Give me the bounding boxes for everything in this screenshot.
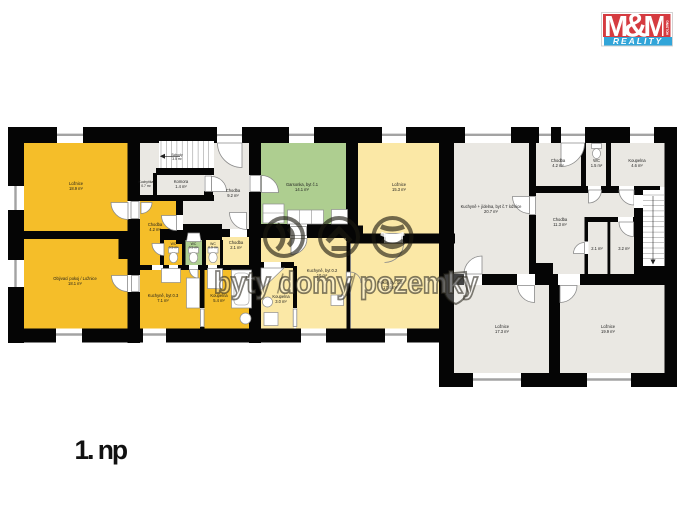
svg-text:3.2 m²: 3.2 m² [618, 246, 630, 251]
svg-text:14.1 m²: 14.1 m² [295, 187, 310, 192]
svg-text:1.5 m²: 1.5 m² [591, 163, 603, 168]
svg-text:HOLDING: HOLDING [666, 20, 670, 35]
svg-text:9.2 m²: 9.2 m² [227, 193, 239, 198]
svg-text:byty domy pozemky: byty domy pozemky [214, 265, 479, 300]
svg-text:18.1 m²: 18.1 m² [68, 281, 83, 286]
svg-text:11.3 m²: 11.3 m² [553, 222, 567, 227]
svg-text:20.7 m²: 20.7 m² [484, 209, 499, 214]
svg-text:0.9 m²: 0.9 m² [189, 246, 199, 250]
svg-text:4.2 m²: 4.2 m² [149, 227, 161, 232]
svg-text:18.9 m²: 18.9 m² [69, 186, 84, 191]
svg-text:19.9 m²: 19.9 m² [601, 329, 616, 334]
svg-text:15.3 m²: 15.3 m² [392, 187, 407, 192]
svg-text:2.1 m²: 2.1 m² [591, 246, 603, 251]
svg-text:REALITY: REALITY [613, 36, 663, 46]
svg-text:0.7 m²: 0.7 m² [141, 184, 151, 188]
svg-text:1.4 m²: 1.4 m² [175, 184, 187, 189]
svg-text:2.1 m²: 2.1 m² [230, 245, 242, 250]
svg-text:4.2 m²: 4.2 m² [552, 163, 564, 168]
svg-text:3.5 m²: 3.5 m² [172, 157, 182, 161]
svg-text:7.1 m²: 7.1 m² [157, 298, 169, 303]
svg-text:4.6 m²: 4.6 m² [631, 163, 643, 168]
svg-text:0.9 m²: 0.9 m² [208, 246, 218, 250]
svg-text:0.9 m²: 0.9 m² [169, 246, 179, 250]
svg-text:1. np: 1. np [75, 435, 129, 465]
svg-text:17.3 m²: 17.3 m² [495, 329, 510, 334]
